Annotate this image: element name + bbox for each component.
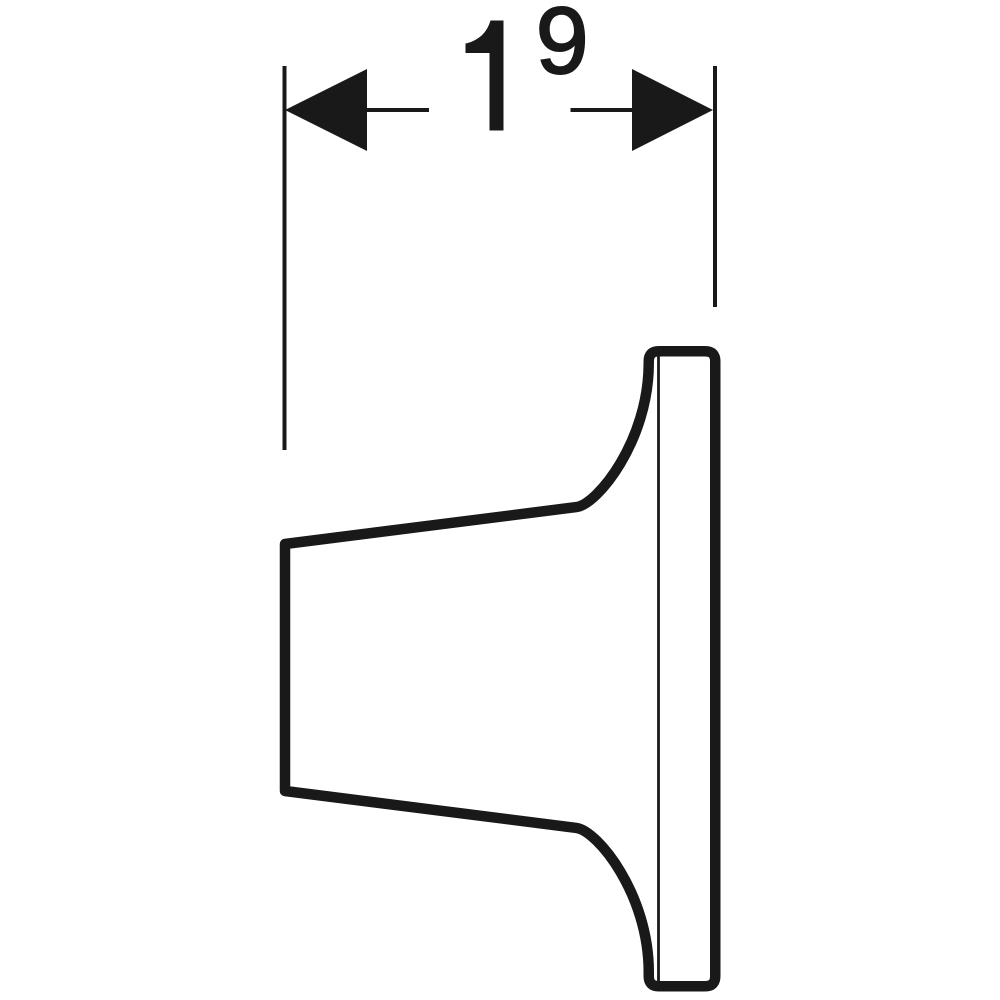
svg-text:9: 9 xyxy=(536,0,589,94)
